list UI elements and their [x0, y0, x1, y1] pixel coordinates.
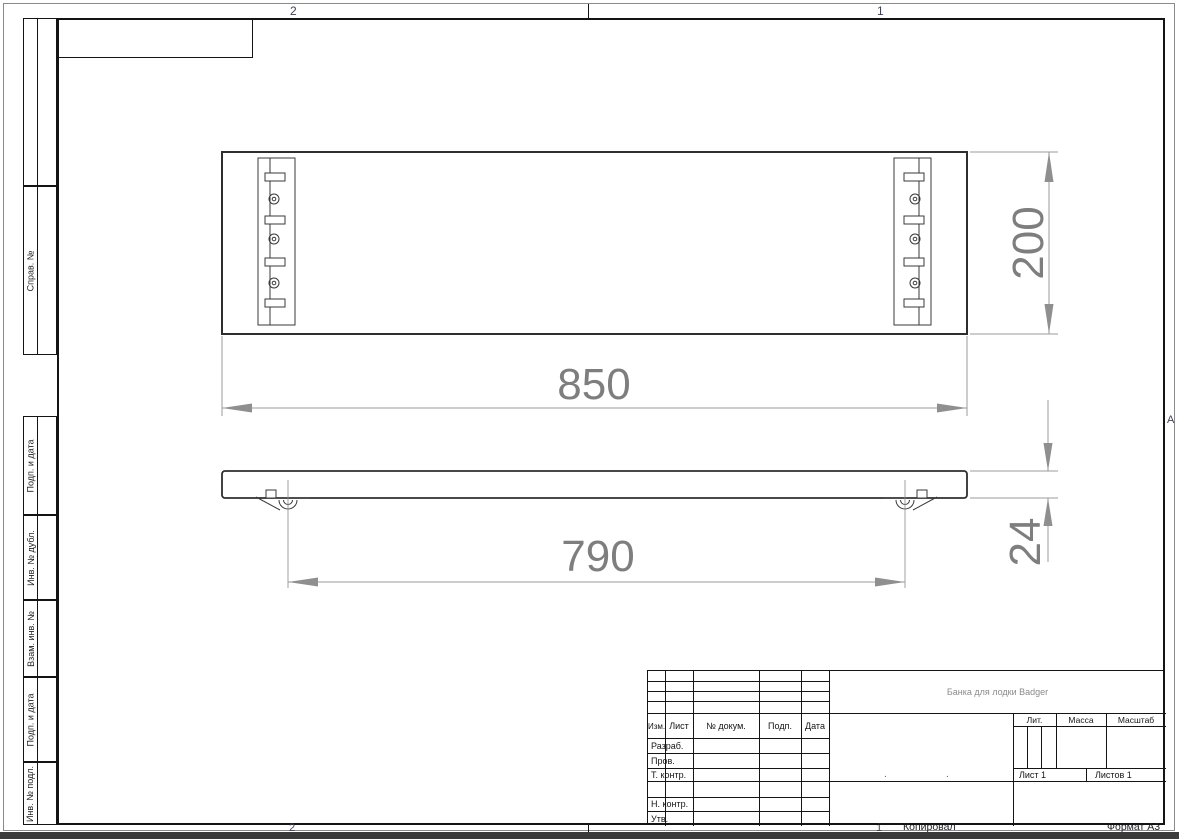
row-n-kontr: Н. контр.: [648, 797, 711, 811]
line: [1027, 726, 1028, 768]
line: [1013, 726, 1166, 727]
drawing-sheet: 2 1 2 1 A Копировал Формат А3 Справ. № П…: [0, 0, 1179, 839]
window-edge-bar: [0, 832, 1179, 839]
row-t-kontr: Т. контр.: [648, 768, 711, 781]
line: [648, 681, 829, 682]
arrow-left-icon: [288, 578, 318, 587]
dim-length-text: 850: [557, 360, 630, 409]
col-data: Дата: [801, 714, 829, 738]
dimension-24: 24: [970, 400, 1058, 566]
col-lit: Лит.: [1013, 713, 1056, 726]
top-view: [222, 152, 967, 334]
dimension-790: 790: [288, 532, 905, 587]
row-utv: Утв.: [648, 811, 711, 826]
part-title: Банка для лодки Badger: [829, 671, 1166, 713]
line: [801, 671, 802, 826]
seat-board-side-outline: [222, 471, 967, 498]
col-dokum: № докум.: [693, 714, 759, 738]
col-podp: Подп.: [759, 714, 801, 738]
left-rail: [258, 158, 295, 325]
sheet-number: Лист 1: [1016, 768, 1087, 781]
arrow-down-icon: [1044, 443, 1053, 471]
dimension-850: 850: [222, 336, 967, 416]
arrow-up-icon: [1045, 152, 1054, 182]
line: [759, 671, 760, 826]
dim-width-text: 200: [1004, 206, 1053, 279]
placeholder-dot: .: [884, 769, 887, 780]
title-block: Изм. Лист № докум. Подп. Дата Разраб. Пр…: [647, 670, 1165, 825]
col-list: Лист: [665, 714, 693, 738]
col-masshtab: Масштаб: [1106, 713, 1166, 726]
line: [648, 781, 1166, 782]
arrow-down-icon: [1045, 304, 1054, 334]
sheet-count: Листов 1: [1092, 768, 1169, 781]
col-massa: Масса: [1056, 713, 1106, 726]
dimension-200: 200: [970, 152, 1058, 334]
dim-span-text: 790: [561, 532, 634, 581]
line: [648, 691, 829, 692]
arrow-right-icon: [875, 578, 905, 587]
row-razrab: Разраб.: [648, 738, 711, 753]
row-prov: Пров.: [648, 753, 711, 768]
right-rail: [894, 158, 931, 325]
line: [1013, 713, 1014, 826]
dim-thickness-text: 24: [1001, 518, 1050, 567]
line: [648, 701, 829, 702]
placeholder-dot: .: [946, 769, 949, 780]
arrow-right-icon: [937, 404, 967, 413]
col-izm: Изм.: [648, 714, 665, 738]
line: [1041, 726, 1042, 768]
arrow-left-icon: [222, 404, 252, 413]
seat-board-outline: [222, 152, 967, 334]
